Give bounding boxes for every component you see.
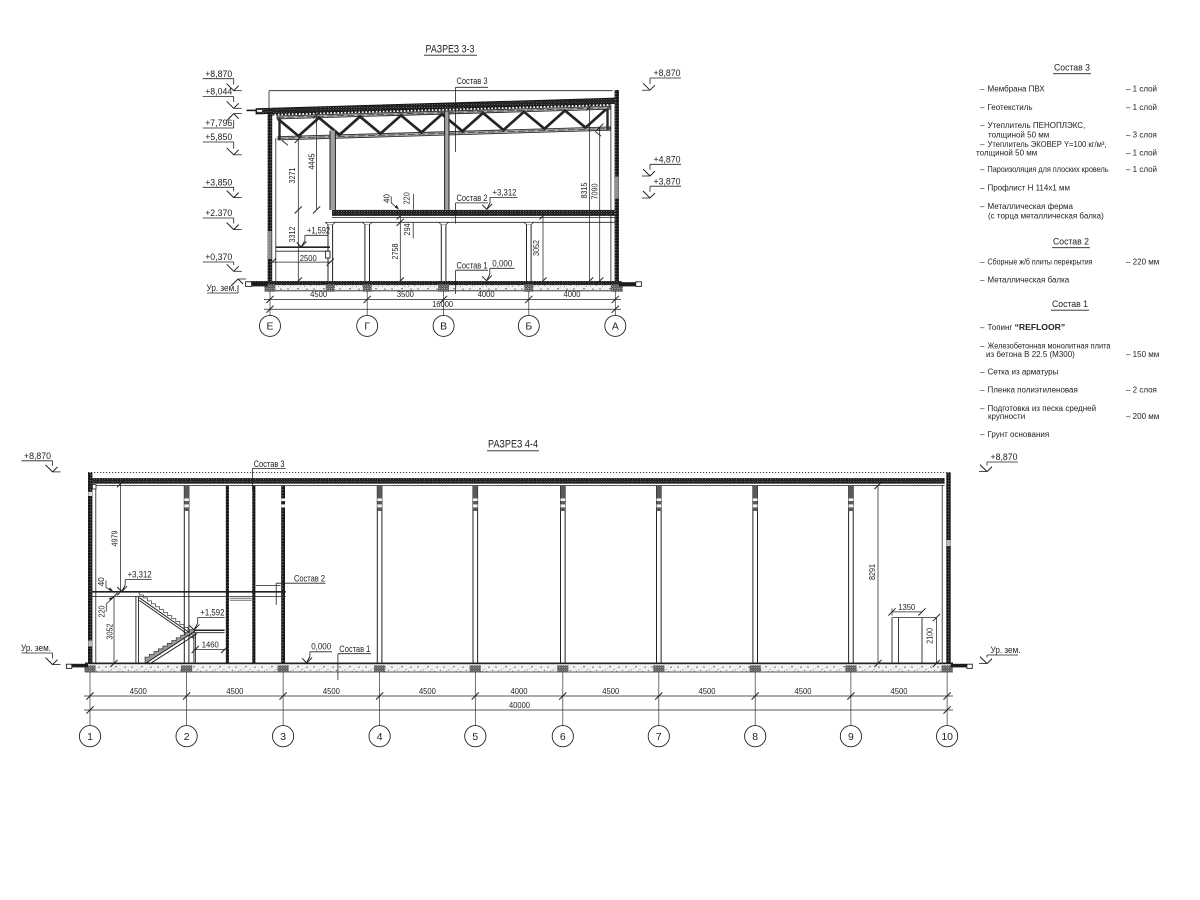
svg-text:3052: 3052: [106, 623, 115, 639]
svg-text:4500: 4500: [602, 686, 619, 696]
svg-text:+8,044: +8,044: [205, 87, 232, 97]
svg-text:+4,870: +4,870: [654, 155, 681, 165]
svg-text:Состав 1: Состав 1: [339, 644, 370, 654]
svg-text:РАЗРЕЗ 3-3: РАЗРЕЗ 3-3: [426, 43, 475, 55]
svg-text:+3,312: +3,312: [128, 570, 152, 580]
svg-text:+8,870: +8,870: [205, 69, 232, 79]
svg-text:Металлическая ферма: Металлическая ферма: [988, 202, 1074, 211]
svg-text:Ур. зем.: Ур. зем.: [21, 643, 51, 653]
svg-text:Сборные ж/б плиты перекрытия: Сборные ж/б плиты перекрытия: [988, 257, 1093, 266]
svg-text:+5,850: +5,850: [205, 132, 232, 142]
svg-text:4500: 4500: [795, 686, 812, 696]
svg-text:Е: Е: [267, 322, 274, 333]
svg-text:4000: 4000: [478, 289, 495, 299]
svg-text:2100: 2100: [926, 627, 935, 643]
svg-text:–: –: [980, 368, 985, 377]
svg-text:–: –: [980, 323, 985, 332]
svg-text:Б: Б: [525, 322, 532, 333]
svg-text:1350: 1350: [898, 602, 915, 612]
svg-text:крупности: крупности: [988, 412, 1025, 421]
svg-text:+3,870: +3,870: [654, 176, 681, 186]
svg-text:3052: 3052: [532, 240, 541, 256]
svg-text:Состав 2: Состав 2: [294, 573, 325, 583]
svg-text:3312: 3312: [288, 226, 297, 242]
svg-text:+0,370: +0,370: [205, 252, 232, 262]
svg-text:– 150 мм: – 150 мм: [1126, 350, 1159, 359]
svg-text:40: 40: [382, 194, 391, 203]
svg-text:4: 4: [377, 732, 383, 743]
svg-text:– 1 слой: – 1 слой: [1126, 85, 1157, 94]
svg-text:Металлическая балка: Металлическая балка: [988, 276, 1070, 285]
svg-text:+1,592: +1,592: [200, 608, 224, 618]
svg-text:+3,850: +3,850: [205, 178, 232, 188]
svg-text:220: 220: [403, 192, 412, 204]
svg-text:7090: 7090: [591, 183, 600, 199]
svg-text:РАЗРЕЗ 4-4: РАЗРЕЗ 4-4: [488, 439, 538, 451]
svg-text:толщиной 50 мм: толщиной 50 мм: [988, 131, 1049, 140]
svg-text:Состав 2: Состав 2: [1053, 237, 1089, 247]
svg-text:0,000: 0,000: [311, 642, 331, 652]
svg-text:–: –: [980, 202, 985, 211]
svg-text:Пленка полиэтиленовая: Пленка полиэтиленовая: [988, 386, 1078, 395]
svg-text:Грунт основания: Грунт основания: [988, 430, 1050, 439]
svg-text:А: А: [612, 322, 619, 333]
svg-text:4445: 4445: [308, 153, 317, 169]
svg-text:Состав 2: Состав 2: [457, 193, 488, 203]
svg-text:– 200 мм: – 200 мм: [1126, 412, 1159, 421]
svg-text:Состав 3: Состав 3: [1054, 63, 1090, 73]
svg-text:9: 9: [848, 732, 854, 743]
svg-text:294: 294: [403, 223, 412, 235]
svg-text:Утеплитель ПЕНОПЛЭКС,: Утеплитель ПЕНОПЛЭКС,: [988, 121, 1086, 130]
svg-text:–: –: [980, 404, 985, 413]
svg-text:+8,870: +8,870: [654, 68, 681, 78]
svg-text:0,000: 0,000: [492, 258, 512, 268]
svg-text:+3,312: +3,312: [493, 188, 517, 198]
svg-text:1: 1: [87, 732, 93, 743]
svg-text:3271: 3271: [288, 167, 297, 183]
svg-text:толщиной 50 мм: толщиной 50 мм: [976, 149, 1037, 158]
svg-text:Состав 3: Состав 3: [457, 76, 488, 86]
svg-text:+2.370: +2.370: [205, 208, 232, 218]
svg-text:+1,592: +1,592: [307, 225, 330, 235]
svg-text:4500: 4500: [699, 686, 716, 696]
svg-text:– 2 слоя: – 2 слоя: [1126, 386, 1157, 395]
svg-text:1460: 1460: [202, 639, 219, 649]
svg-text:Ур. зем.: Ур. зем.: [991, 645, 1021, 655]
svg-text:В: В: [440, 322, 447, 333]
svg-text:Г: Г: [364, 322, 370, 333]
svg-text:из бетона В 22.5 (М300): из бетона В 22.5 (М300): [986, 350, 1075, 359]
svg-text:4979: 4979: [110, 530, 119, 546]
svg-text:–: –: [980, 276, 985, 285]
svg-text:Геотекстиль: Геотекстиль: [988, 103, 1033, 112]
svg-text:– 1 слой: – 1 слой: [1126, 149, 1157, 158]
svg-text:–: –: [980, 121, 985, 130]
svg-text:–: –: [980, 85, 985, 94]
svg-text:– 1 слой: – 1 слой: [1126, 165, 1157, 174]
svg-text:4500: 4500: [310, 289, 327, 299]
svg-text:4000: 4000: [564, 289, 581, 299]
svg-text:10: 10: [941, 732, 953, 743]
svg-text:2: 2: [184, 732, 190, 743]
svg-text:Сетка из арматуры: Сетка из арматуры: [988, 368, 1059, 377]
svg-text:+8,870: +8,870: [24, 451, 51, 461]
svg-text:6: 6: [560, 732, 566, 743]
svg-text:–: –: [980, 103, 985, 112]
svg-text:Состав 3: Состав 3: [254, 459, 285, 469]
svg-text:8: 8: [752, 732, 758, 743]
svg-text:4500: 4500: [130, 686, 147, 696]
svg-text:5: 5: [472, 732, 478, 743]
svg-text:16000: 16000: [432, 299, 453, 309]
svg-text:4500: 4500: [323, 686, 340, 696]
svg-text:7: 7: [656, 732, 662, 743]
svg-text:–: –: [980, 257, 985, 266]
svg-text:Мембрана ПВХ: Мембрана ПВХ: [988, 85, 1046, 94]
svg-text:8291: 8291: [868, 564, 877, 580]
svg-text:Топинг “REFLOOR”: Топинг “REFLOOR”: [988, 322, 1066, 332]
svg-text:Профлист Н 114х1 мм: Профлист Н 114х1 мм: [988, 184, 1071, 193]
svg-text:+8,870: +8,870: [991, 452, 1018, 462]
svg-text:220: 220: [98, 605, 107, 617]
svg-text:–: –: [980, 386, 985, 395]
svg-text:–: –: [980, 165, 985, 174]
svg-text:3: 3: [280, 732, 286, 743]
svg-text:– 220 мм: – 220 мм: [1126, 257, 1159, 266]
svg-text:4500: 4500: [226, 686, 243, 696]
svg-text:40: 40: [97, 577, 106, 586]
svg-text:Состав 1: Состав 1: [1052, 299, 1088, 309]
svg-text:4500: 4500: [419, 686, 436, 696]
svg-text:4000: 4000: [511, 686, 528, 696]
svg-text:Пароизоляция для плоских крове: Пароизоляция для плоских кровель: [988, 165, 1109, 174]
svg-text:(с торца металлическая балка): (с торца металлическая балка): [988, 211, 1104, 220]
svg-text:–: –: [980, 342, 985, 351]
svg-text:8315: 8315: [580, 182, 589, 198]
svg-text:–: –: [980, 430, 985, 439]
svg-text:– 1 слой: – 1 слой: [1126, 103, 1157, 112]
svg-text:2500: 2500: [300, 253, 317, 263]
svg-text:Состав 1: Состав 1: [457, 260, 488, 270]
svg-text:–: –: [980, 184, 985, 193]
svg-text:3500: 3500: [397, 289, 414, 299]
svg-text:2758: 2758: [391, 243, 400, 259]
svg-text:40000: 40000: [509, 700, 530, 710]
svg-text:4500: 4500: [891, 686, 908, 696]
svg-text:– 3 слоя: – 3 слоя: [1126, 131, 1157, 140]
